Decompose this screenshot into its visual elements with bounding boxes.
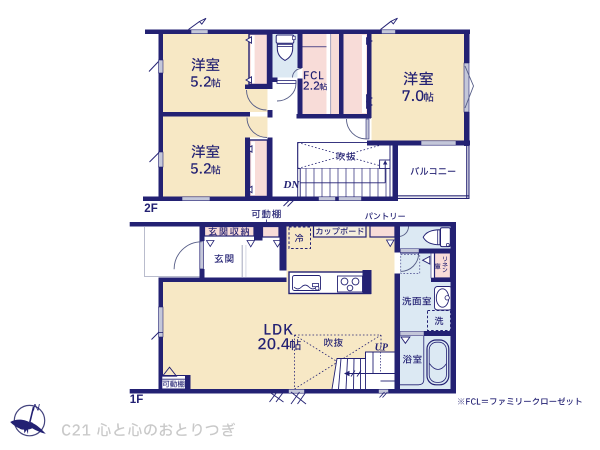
svg-text:UP: UP [375,343,389,354]
svg-text:1F: 1F [130,394,143,406]
svg-text:DN: DN [283,179,301,191]
svg-text:2F: 2F [144,203,157,215]
svg-text:N: N [33,402,40,413]
